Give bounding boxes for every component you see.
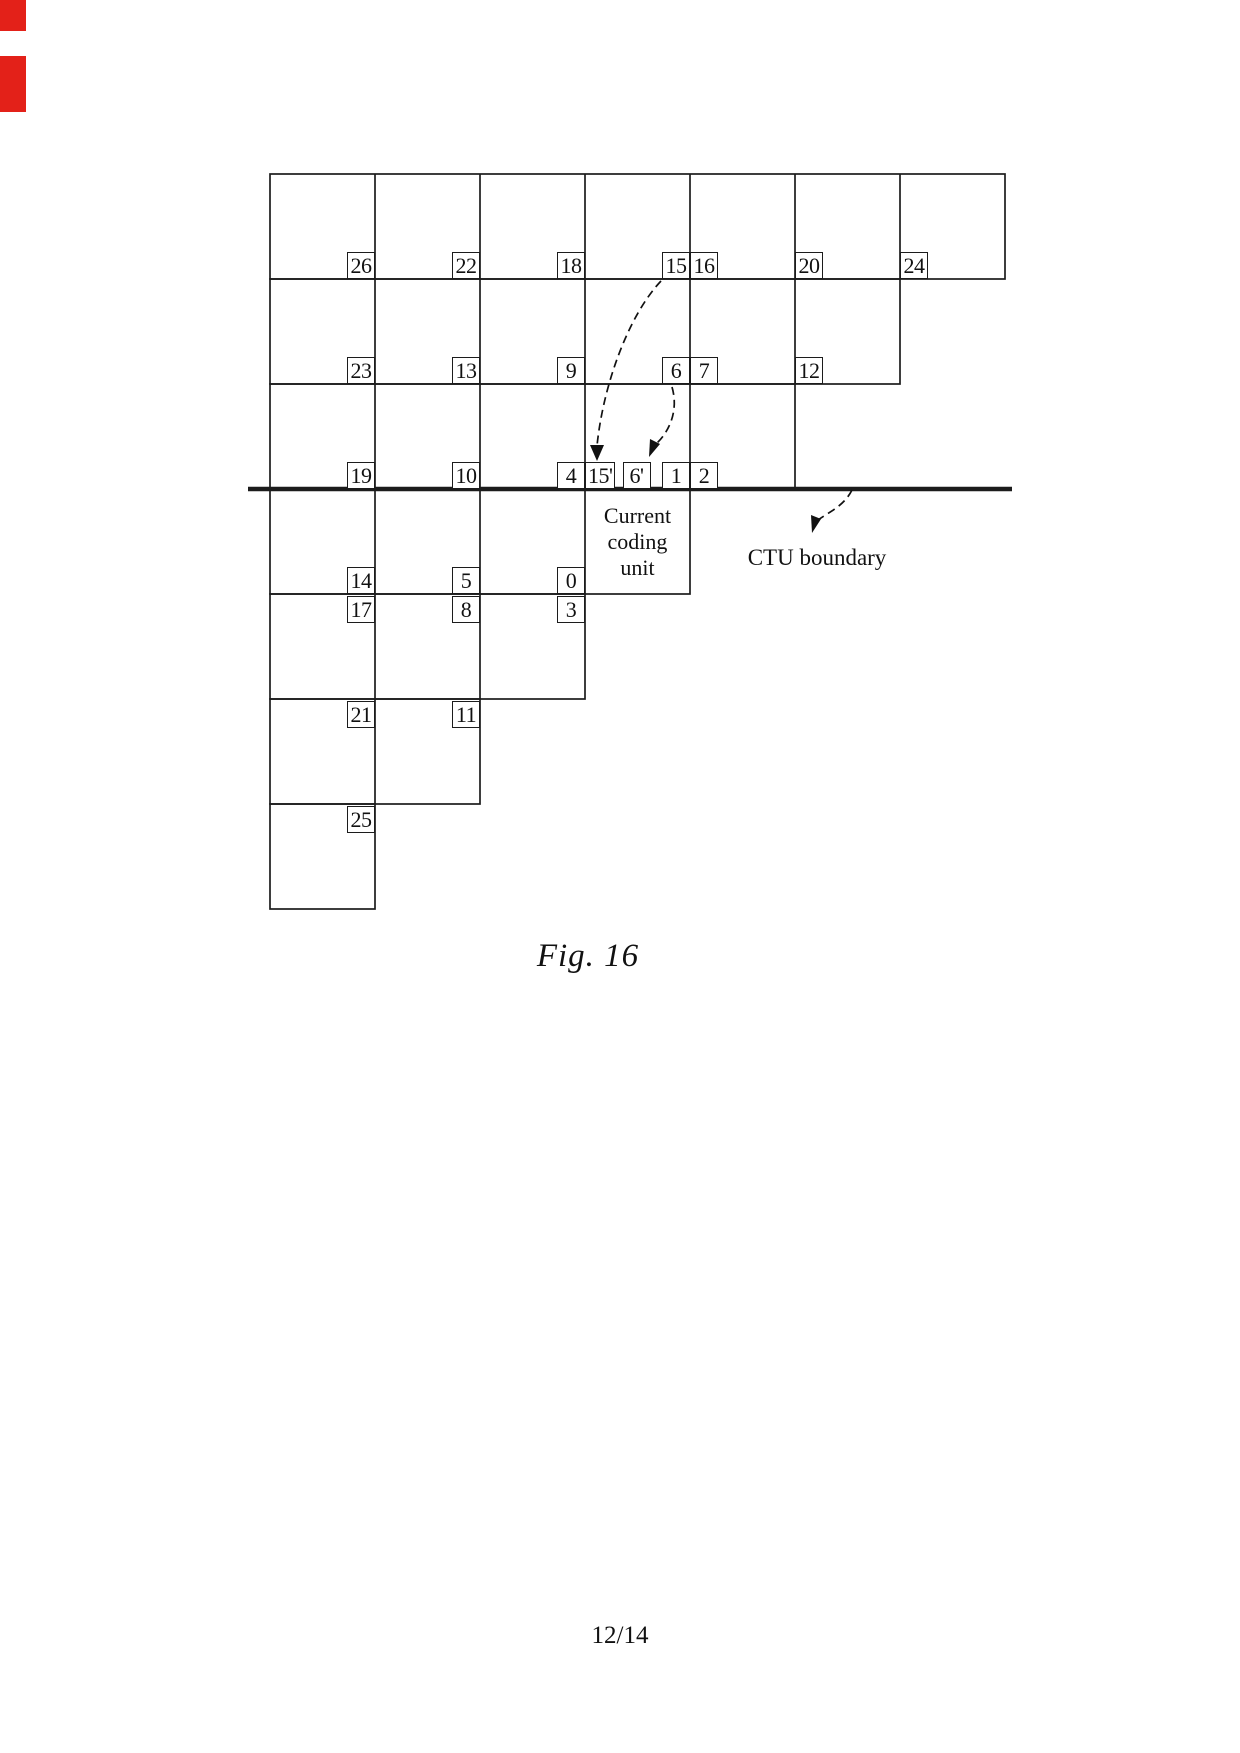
unit-label-4: 4 <box>557 462 585 489</box>
unit-label-7: 7 <box>690 357 718 384</box>
unit-label-0: 0 <box>557 567 585 594</box>
unit-label-10: 10 <box>452 462 480 489</box>
unit-label-6p: 6' <box>623 462 651 489</box>
unit-label-6: 6 <box>662 357 690 384</box>
unit-labels-layer: 262218151620242313967121910415'6'1214501… <box>0 0 1240 1753</box>
current-unit-line-2: coding <box>608 529 668 555</box>
unit-label-5: 5 <box>452 567 480 594</box>
unit-label-22: 22 <box>452 252 480 279</box>
unit-label-17: 17 <box>347 596 375 623</box>
unit-label-25: 25 <box>347 806 375 833</box>
unit-label-15: 15 <box>662 252 690 279</box>
unit-label-20: 20 <box>795 252 823 279</box>
unit-label-24: 24 <box>900 252 928 279</box>
unit-label-8: 8 <box>452 596 480 623</box>
unit-label-21: 21 <box>347 701 375 728</box>
unit-label-15p: 15' <box>585 462 615 489</box>
unit-label-11: 11 <box>452 701 480 728</box>
unit-label-1: 1 <box>662 462 690 489</box>
patent-drawing-page: 262218151620242313967121910415'6'1214501… <box>0 0 1240 1753</box>
ctu-boundary-label: CTU boundary <box>722 544 912 572</box>
unit-label-18: 18 <box>557 252 585 279</box>
current-unit-line-1: Current <box>604 503 671 529</box>
page-number: 12/14 <box>0 1622 1240 1650</box>
figure-caption: Fig. 16 <box>488 938 688 975</box>
unit-label-9: 9 <box>557 357 585 384</box>
current-coding-unit-cell: Current coding unit <box>585 489 690 594</box>
unit-label-19: 19 <box>347 462 375 489</box>
unit-label-2: 2 <box>690 462 718 489</box>
unit-label-3: 3 <box>557 596 585 623</box>
unit-label-13: 13 <box>452 357 480 384</box>
unit-label-12: 12 <box>795 357 823 384</box>
unit-label-26: 26 <box>347 252 375 279</box>
unit-label-16: 16 <box>690 252 718 279</box>
unit-label-14: 14 <box>347 567 375 594</box>
unit-label-23: 23 <box>347 357 375 384</box>
current-unit-line-3: unit <box>620 555 654 581</box>
